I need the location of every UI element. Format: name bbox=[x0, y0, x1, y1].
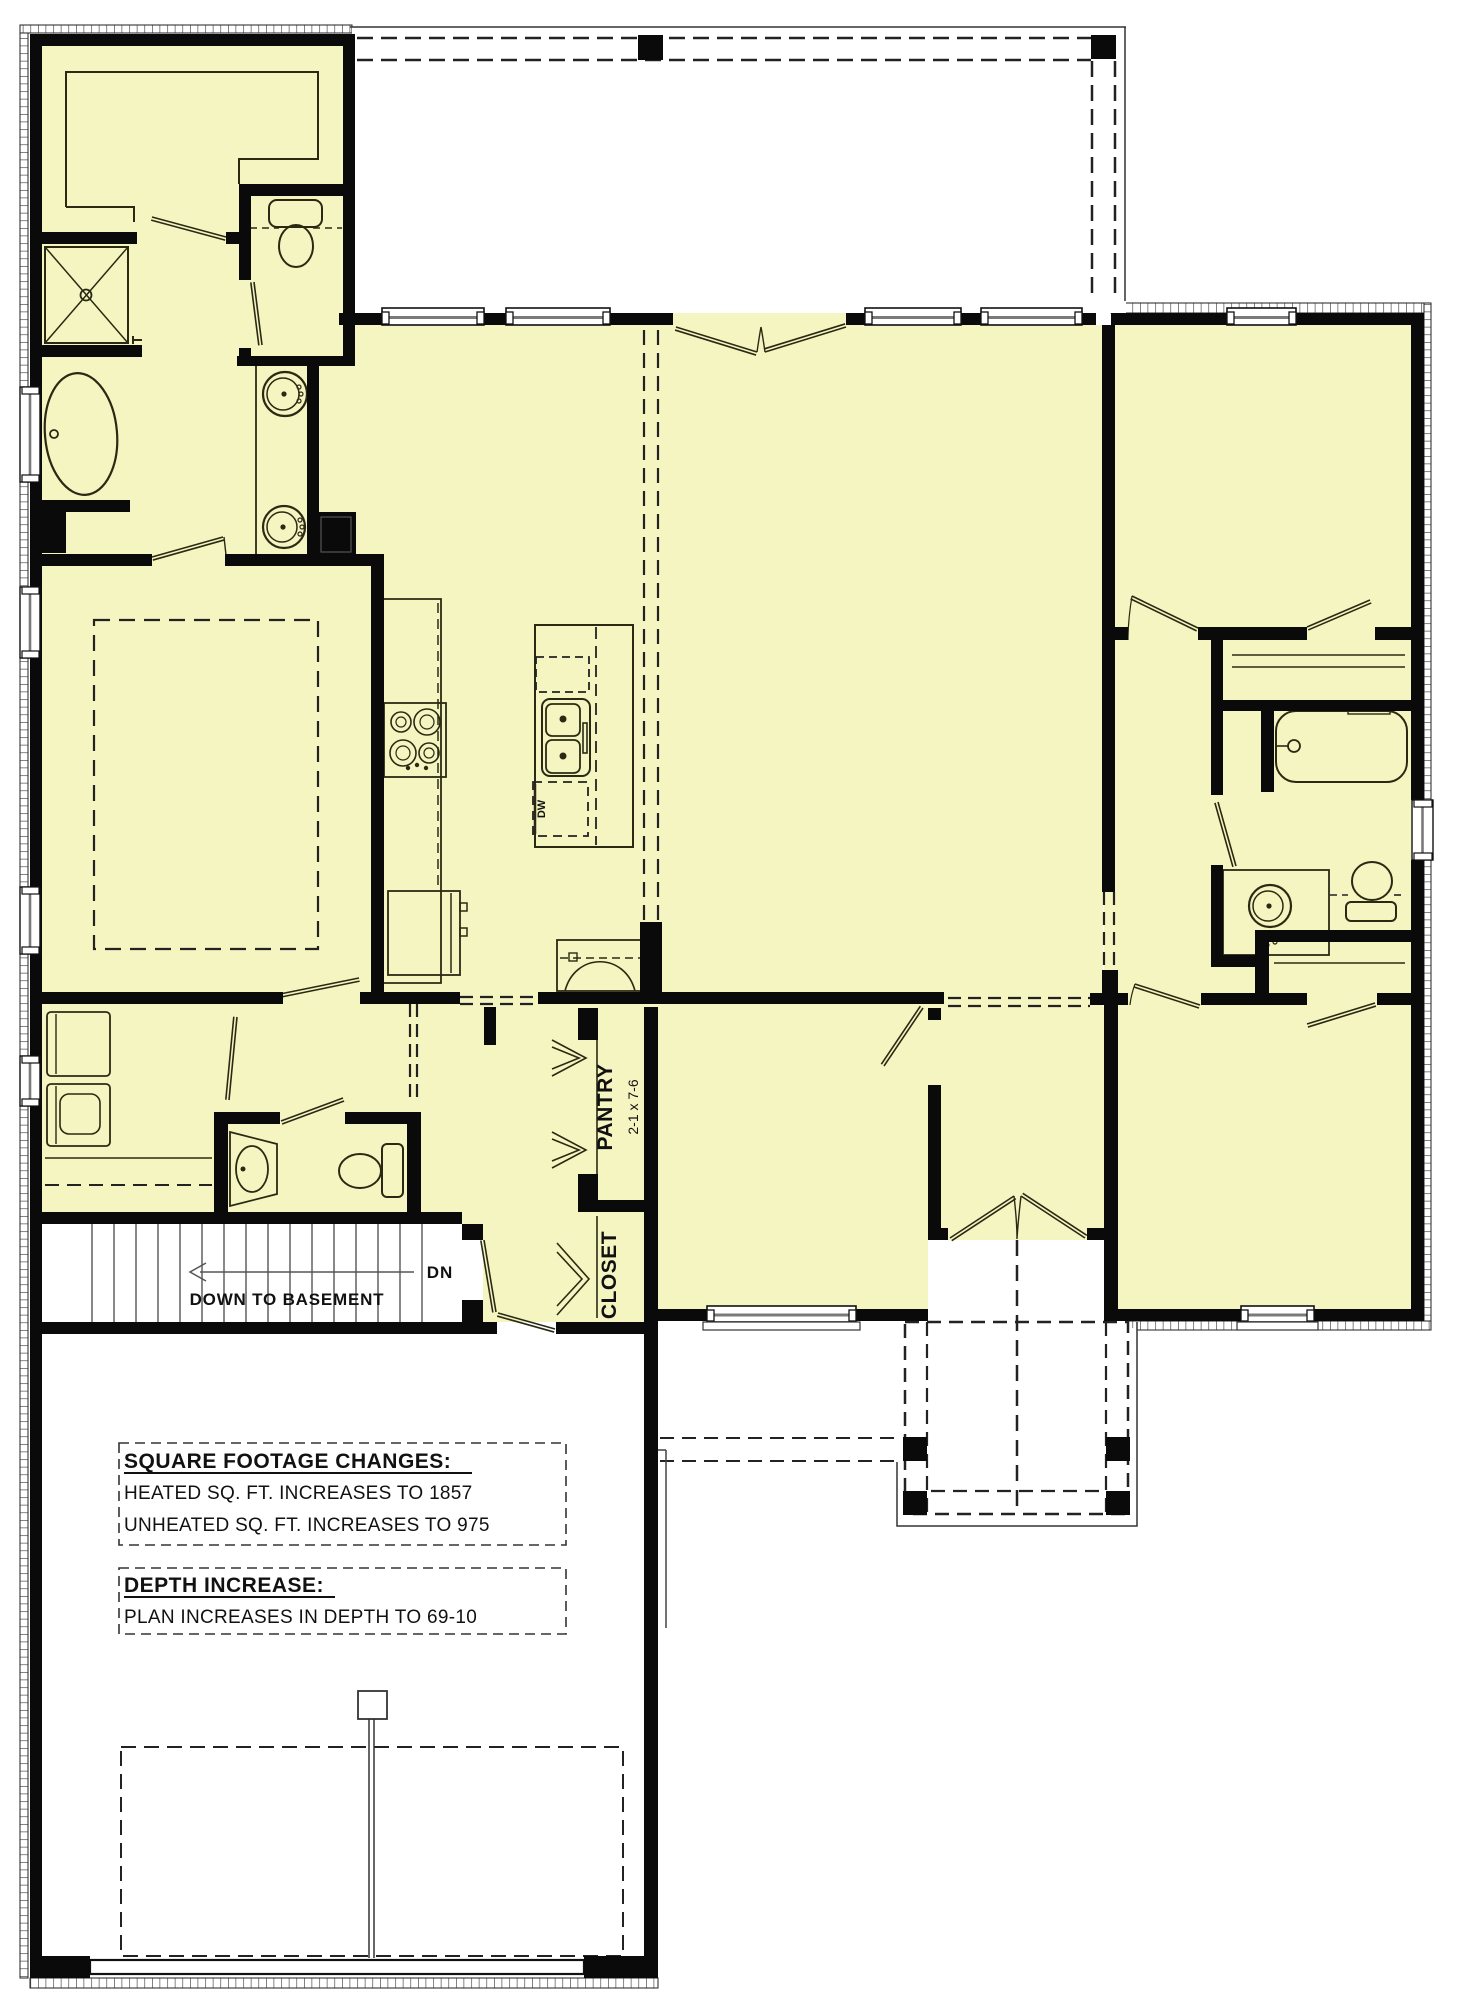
svg-text:UNHEATED SQ. FT. INCREASES TO: UNHEATED SQ. FT. INCREASES TO 975 bbox=[124, 1515, 490, 1536]
svg-text:DOWN TO BASEMENT: DOWN TO BASEMENT bbox=[190, 1290, 385, 1309]
svg-text:HEATED SQ. FT. INCREASES TO 18: HEATED SQ. FT. INCREASES TO 1857 bbox=[124, 1483, 473, 1504]
svg-text:DW: DW bbox=[536, 799, 548, 818]
svg-text:PLAN INCREASES IN DEPTH TO 69-: PLAN INCREASES IN DEPTH TO 69-10 bbox=[124, 1607, 477, 1628]
svg-text:PANTRY: PANTRY bbox=[594, 1064, 617, 1151]
svg-text:2-1 x 7-6: 2-1 x 7-6 bbox=[625, 1079, 641, 1134]
svg-text:CLOSET: CLOSET bbox=[598, 1231, 621, 1319]
svg-text:DN: DN bbox=[427, 1263, 454, 1282]
svg-text:DEPTH INCREASE:: DEPTH INCREASE: bbox=[124, 1574, 324, 1597]
svg-text:SQUARE FOOTAGE CHANGES:: SQUARE FOOTAGE CHANGES: bbox=[124, 1450, 451, 1473]
